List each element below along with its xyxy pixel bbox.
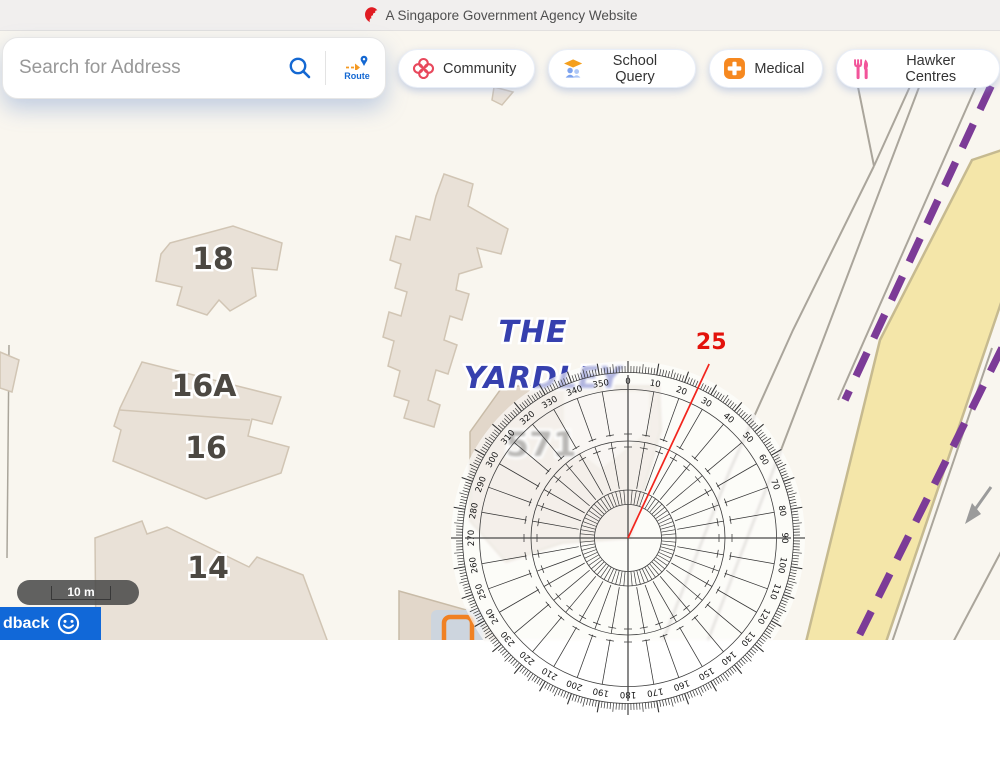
smiley-icon <box>57 612 80 635</box>
measured-angle-label: 25 <box>696 330 727 355</box>
search-input[interactable] <box>3 57 285 79</box>
community-button[interactable]: Community <box>398 49 535 88</box>
medical-button[interactable]: Medical <box>709 49 823 88</box>
quick-buttons-row: Community School Query Medical <box>398 49 1000 88</box>
search-button[interactable] <box>285 53 315 83</box>
singapore-lion-icon <box>363 6 379 24</box>
community-icon <box>412 57 435 80</box>
medical-label: Medical <box>754 61 804 77</box>
hawker-centres-label: Hawker Centres <box>881 53 981 85</box>
scale-label: 10 m <box>67 586 94 599</box>
building-label: 18 <box>192 242 234 277</box>
school-query-button[interactable]: School Query <box>548 49 696 88</box>
search-divider <box>325 51 326 85</box>
route-label: Route <box>344 71 370 81</box>
banner-text: A Singapore Government Agency Website <box>386 8 638 23</box>
medical-icon <box>723 57 746 80</box>
school-query-icon <box>562 57 584 80</box>
community-label: Community <box>443 61 516 77</box>
route-icon <box>344 55 370 70</box>
onemap-app: { "banner": { "text": "A Singapore Gover… <box>0 0 1000 758</box>
hawker-centres-icon <box>850 57 872 80</box>
search-panel: Route <box>2 37 386 99</box>
scale-bracket: 10 m <box>51 586 111 600</box>
building-label: 14 <box>187 551 229 586</box>
government-banner: A Singapore Government Agency Website <box>0 0 1000 31</box>
search-icon <box>287 55 313 81</box>
hawker-centres-button[interactable]: Hawker Centres <box>836 49 1000 88</box>
route-button[interactable]: Route <box>335 55 385 81</box>
scale-bar: 10 m <box>17 580 139 605</box>
school-query-label: School Query <box>593 53 678 85</box>
protractor-degree-label: 10 <box>649 378 662 390</box>
protractor-degree-label: 80 <box>776 505 788 518</box>
building-label: 16A <box>172 369 238 404</box>
feedback-button[interactable]: dback <box>0 607 101 640</box>
feedback-label: dback <box>3 615 49 633</box>
protractor-overlay[interactable]: 0102030405060708090100110120130140150160… <box>428 326 828 738</box>
building-label: 16 <box>185 431 227 466</box>
